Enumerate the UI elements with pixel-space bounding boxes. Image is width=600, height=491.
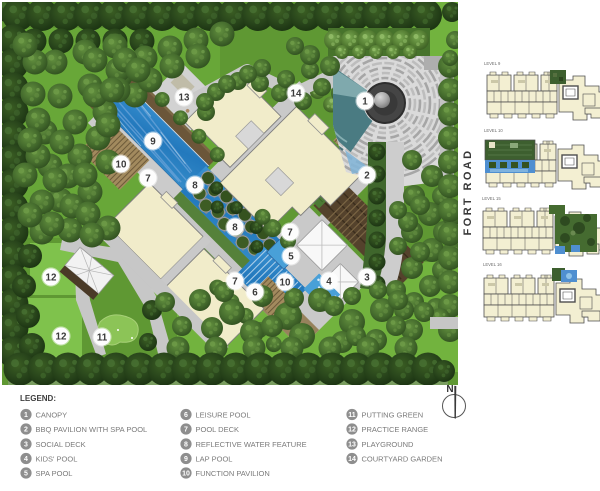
svg-text:4: 4	[326, 277, 332, 288]
svg-text:SOCIAL DECK: SOCIAL DECK	[36, 440, 86, 449]
svg-text:N: N	[446, 384, 453, 395]
svg-text:10: 10	[280, 278, 291, 289]
svg-text:11: 11	[348, 412, 356, 419]
svg-text:LEVEL 9: LEVEL 9	[484, 61, 501, 66]
svg-text:CANOPY: CANOPY	[36, 410, 68, 419]
svg-text:13: 13	[179, 93, 190, 104]
svg-text:6: 6	[184, 412, 188, 419]
svg-text:5: 5	[288, 252, 294, 263]
svg-text:REFLECTIVE WATER FEATURE: REFLECTIVE WATER FEATURE	[196, 440, 307, 449]
svg-text:LEGEND:: LEGEND:	[20, 394, 56, 403]
svg-text:LAP POOL: LAP POOL	[196, 454, 233, 463]
svg-text:9: 9	[184, 456, 188, 463]
svg-text:9: 9	[150, 137, 156, 148]
svg-text:3: 3	[364, 273, 370, 284]
svg-text:1: 1	[362, 97, 368, 108]
svg-text:SPA POOL: SPA POOL	[36, 469, 73, 478]
svg-text:BBQ PAVILION WITH SPA POOL: BBQ PAVILION WITH SPA POOL	[36, 425, 148, 434]
svg-text:3: 3	[24, 442, 28, 449]
svg-text:12: 12	[56, 332, 67, 343]
svg-text:12: 12	[46, 273, 57, 284]
svg-text:POOL DECK: POOL DECK	[196, 425, 239, 434]
svg-text:12: 12	[348, 427, 356, 434]
svg-text:LEVEL 16: LEVEL 16	[483, 262, 502, 267]
svg-text:KIDS' POOL: KIDS' POOL	[36, 454, 78, 463]
svg-text:7: 7	[184, 427, 188, 434]
svg-text:PRACTICE RANGE: PRACTICE RANGE	[362, 425, 429, 434]
svg-text:FUNCTION PAVILION: FUNCTION PAVILION	[196, 469, 270, 478]
svg-text:14: 14	[348, 456, 356, 463]
svg-text:13: 13	[348, 442, 356, 449]
svg-text:10: 10	[116, 160, 127, 171]
svg-text:7: 7	[287, 228, 293, 239]
svg-text:6: 6	[252, 288, 258, 299]
svg-text:10: 10	[182, 471, 190, 478]
svg-text:PUTTING GREEN: PUTTING GREEN	[362, 410, 424, 419]
svg-text:7: 7	[145, 174, 151, 185]
svg-text:11: 11	[97, 333, 108, 344]
svg-text:LEISURE POOL: LEISURE POOL	[196, 410, 251, 419]
svg-text:8: 8	[184, 442, 188, 449]
svg-text:2: 2	[24, 427, 28, 434]
svg-text:4: 4	[24, 456, 28, 463]
svg-text:FORT ROAD: FORT ROAD	[462, 149, 474, 236]
svg-text:8: 8	[192, 181, 198, 192]
svg-text:1: 1	[24, 412, 28, 419]
svg-text:14: 14	[291, 89, 302, 100]
svg-text:8: 8	[232, 223, 238, 234]
svg-text:7: 7	[232, 277, 238, 288]
svg-text:LEVEL 15: LEVEL 15	[482, 196, 501, 201]
svg-text:COURTYARD GARDEN: COURTYARD GARDEN	[362, 454, 443, 463]
svg-text:PLAYGROUND: PLAYGROUND	[362, 440, 415, 449]
svg-text:LEVEL 10: LEVEL 10	[484, 128, 503, 133]
svg-text:5: 5	[24, 471, 28, 478]
svg-text:2: 2	[364, 171, 370, 182]
